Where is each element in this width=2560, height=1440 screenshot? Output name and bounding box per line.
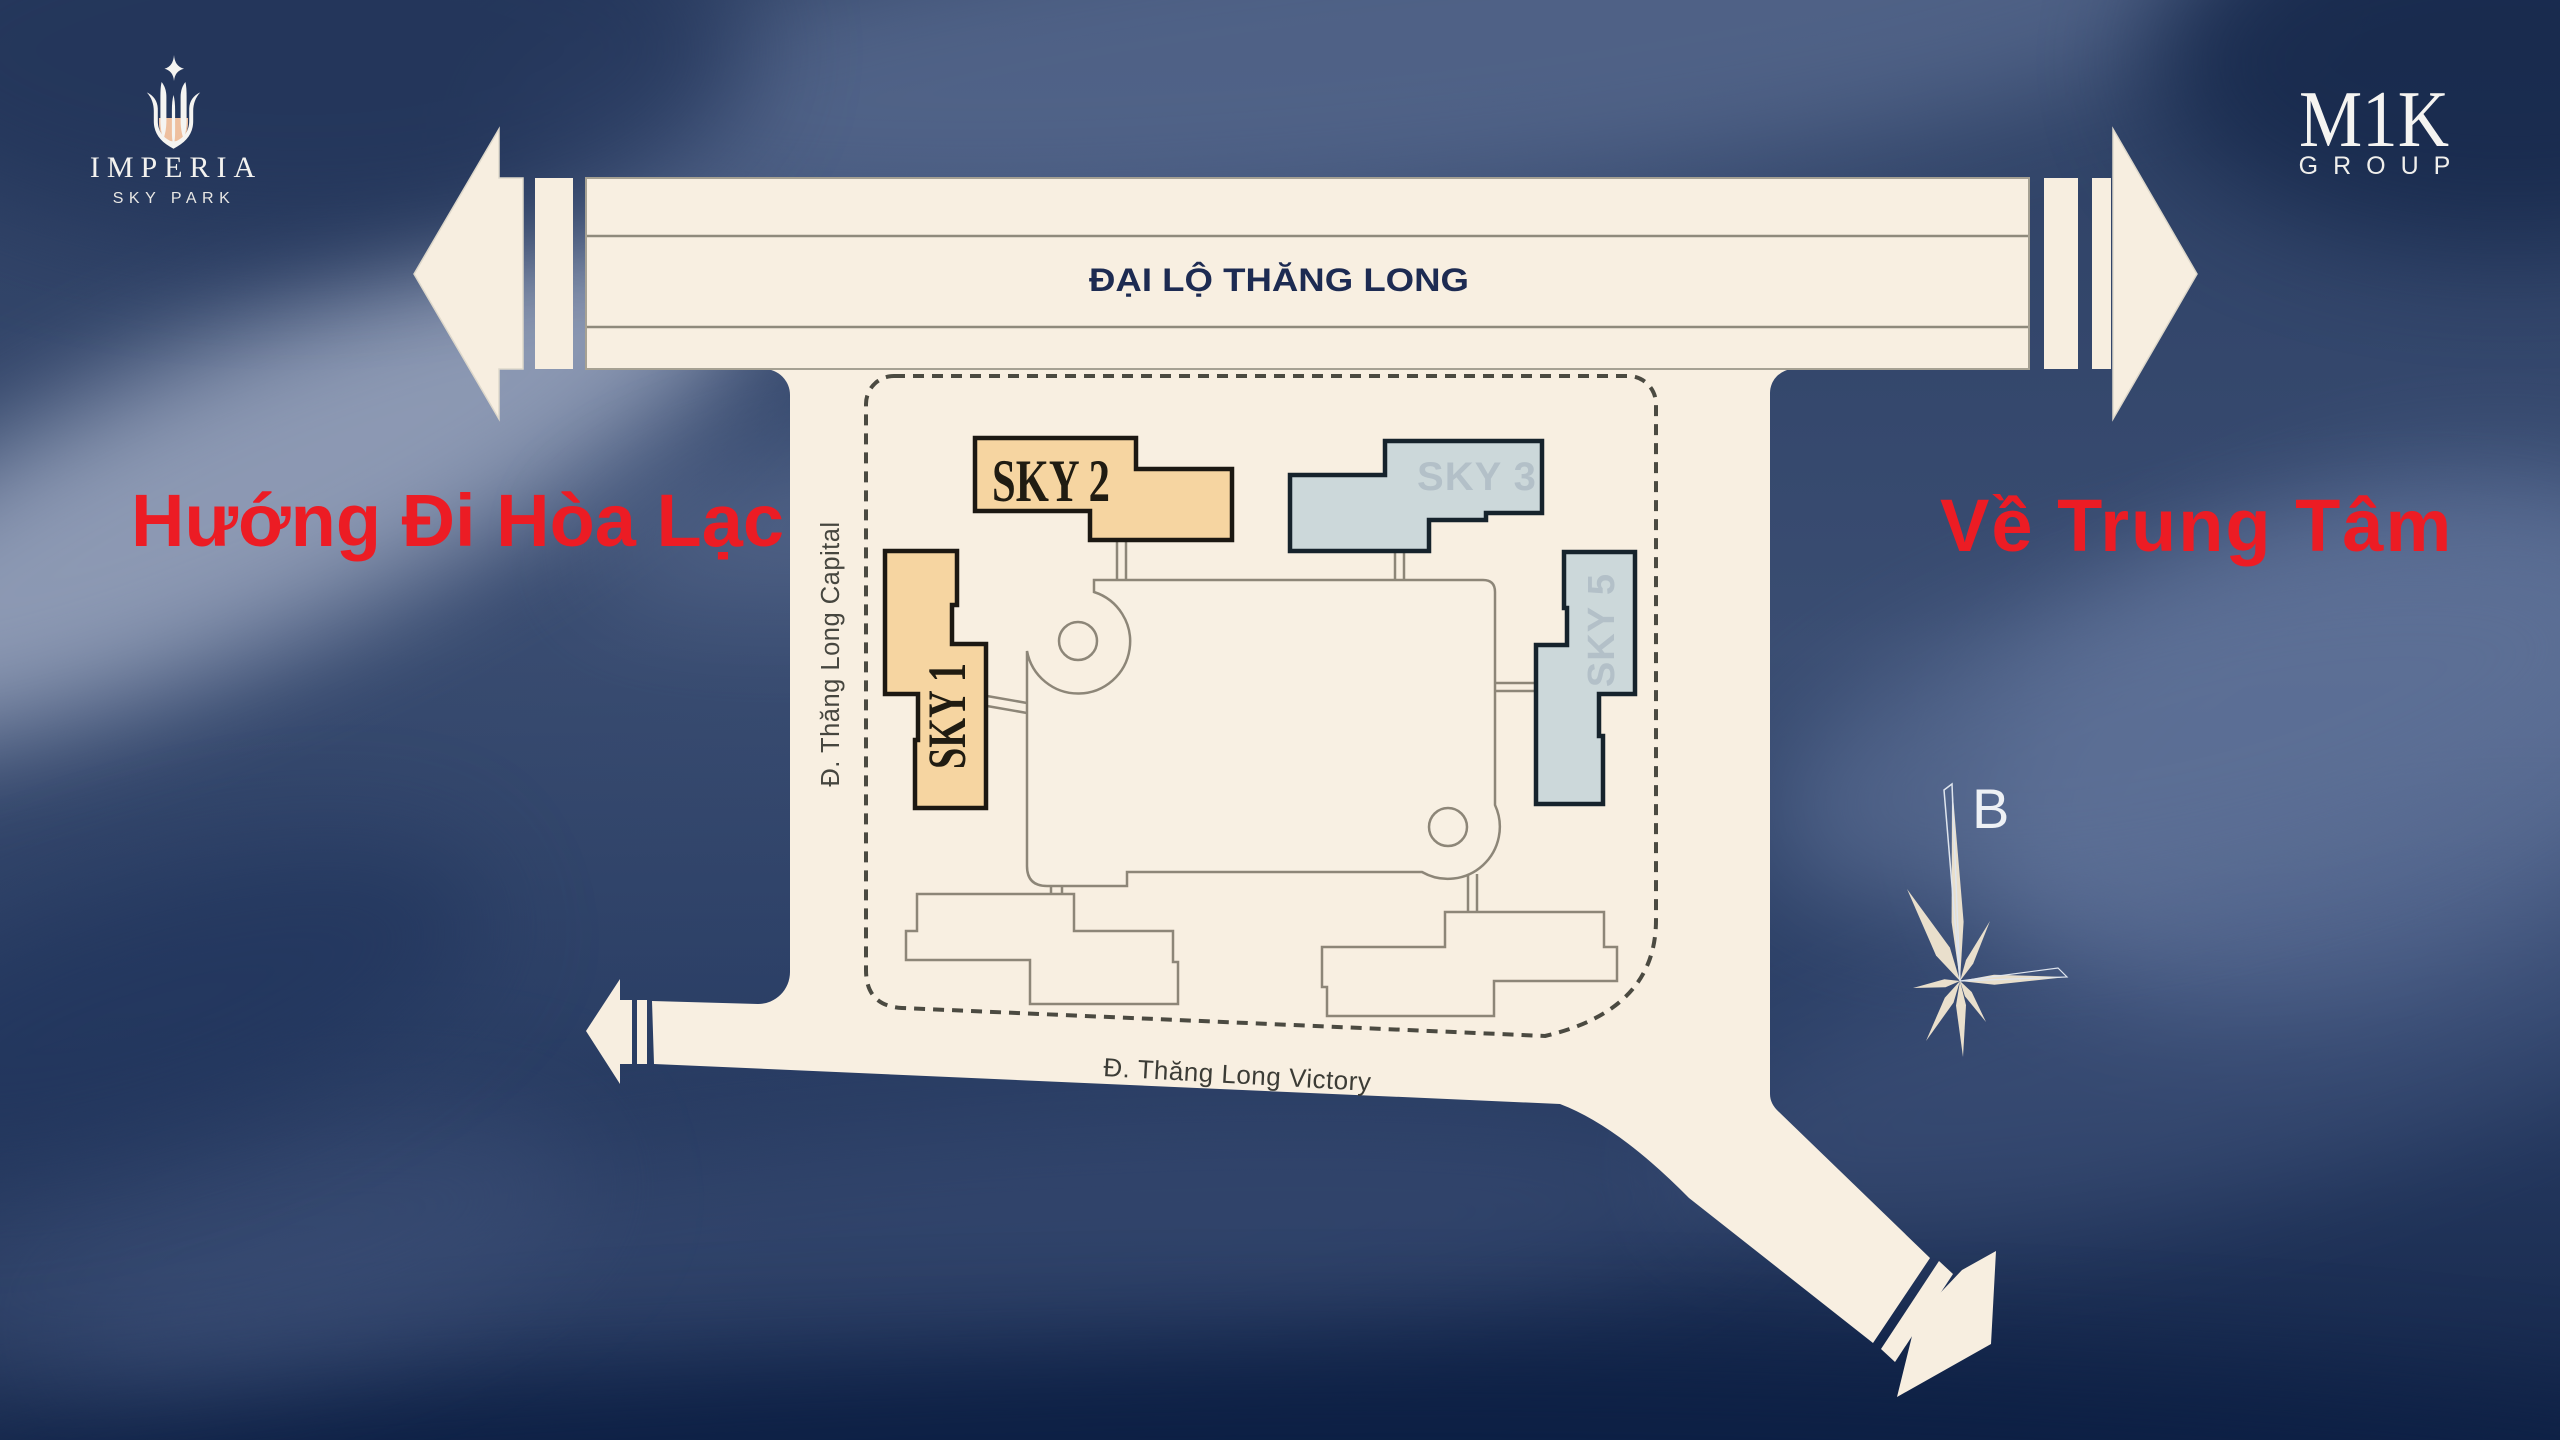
- svg-text:SKY 2: SKY 2: [992, 448, 1110, 514]
- svg-text:SKY PARK: SKY PARK: [113, 190, 236, 207]
- svg-text:IMPERIA: IMPERIA: [90, 151, 262, 184]
- svg-text:Về Trung Tâm: Về Trung Tâm: [1940, 484, 2453, 567]
- svg-text:Hướng Đi Hòa Lạc: Hướng Đi Hòa Lạc: [131, 479, 784, 562]
- svg-text:ĐẠI LỘ THĂNG LONG: ĐẠI LỘ THĂNG LONG: [1089, 262, 1469, 298]
- svg-text:B: B: [1972, 777, 2009, 840]
- svg-text:M1K: M1K: [2299, 76, 2449, 164]
- svg-text:SKY 3: SKY 3: [1417, 455, 1537, 499]
- svg-text:Đ. Thăng Long Capital: Đ. Thăng Long Capital: [817, 521, 845, 786]
- svg-text:SKY 5: SKY 5: [1581, 573, 1623, 687]
- svg-text:SKY 1: SKY 1: [917, 663, 977, 769]
- svg-text:GROUP: GROUP: [2299, 152, 2466, 180]
